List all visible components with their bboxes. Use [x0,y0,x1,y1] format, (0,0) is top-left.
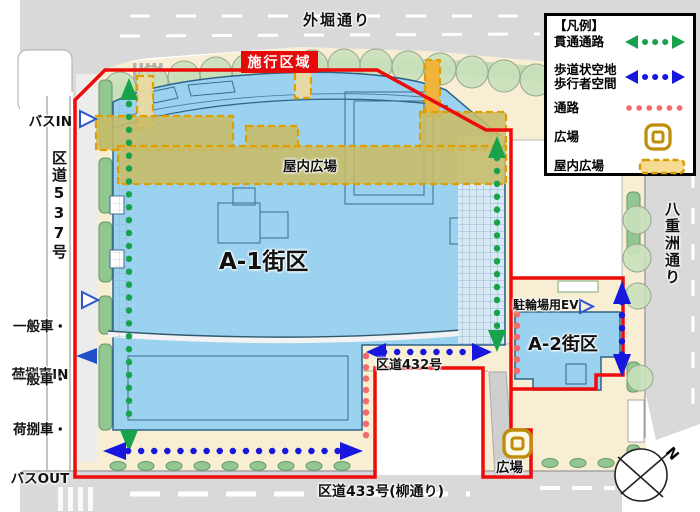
plaza-label: 広場 [496,456,523,476]
street-label-sotobori: 外堀通り [303,9,371,30]
general-out-label: 一般車・ 荷捌車・ バスOUT [6,339,74,504]
site-plan: 外堀通り 八重洲通り 区道537号 区道432号 区道433号(柳通り) A-1… [0,0,700,512]
legend-plaza-label: 広場 [554,130,579,144]
block-label-a2: A-2街区 [528,330,598,356]
passage-icon [624,102,686,114]
legend-indoor-plaza-icon [624,157,686,175]
parking-bay [628,400,644,442]
legend-box: 【凡例】 貫通通路 歩道状空地 歩行者空間 通路 広場 屋内広場 [544,13,696,176]
bus-in-label: バスIN [24,110,72,130]
legend-pedestrian-label: 歩道状空地 歩行者空間 [554,63,617,90]
street-label-432: 区道432号 [376,354,442,373]
pedestrian-space-icon [624,68,686,86]
legend-indoor-plaza-label: 屋内広場 [554,159,604,173]
through-passage-icon [624,33,686,51]
general-out-line1: 一般車・ [6,372,74,389]
legend-title: 【凡例】 [554,19,686,33]
legend-through-passage-label: 貫通通路 [554,35,604,49]
general-out-line3: バスOUT [6,471,74,488]
block-label-a1: A-1街区 [219,242,308,276]
boundary-banner: 施行区域 [241,51,318,73]
indoor-plaza-label: 屋内広場 [283,155,337,175]
general-out-line2: 荷捌車・ [6,422,74,439]
block-outside-south [377,369,482,475]
legend-pedestrian-line2: 歩行者空間 [554,76,617,91]
boundary-banner-text: 施行区域 [248,52,312,72]
general-in-line1: 一般車・ [6,319,74,335]
plaza-icon [504,430,531,457]
service-lane [76,74,98,462]
legend-plaza-icon [624,123,686,151]
street-label-433: 区道433号(柳通り) [318,481,444,501]
legend-passage-label: 通路 [554,101,579,115]
street-label-yaesu: 八重洲通り [662,201,683,286]
street-label-537: 区道537号 [49,150,70,261]
bicycle-ev-label: 駐輪場用EV [513,296,579,313]
ev-structure [558,281,598,292]
